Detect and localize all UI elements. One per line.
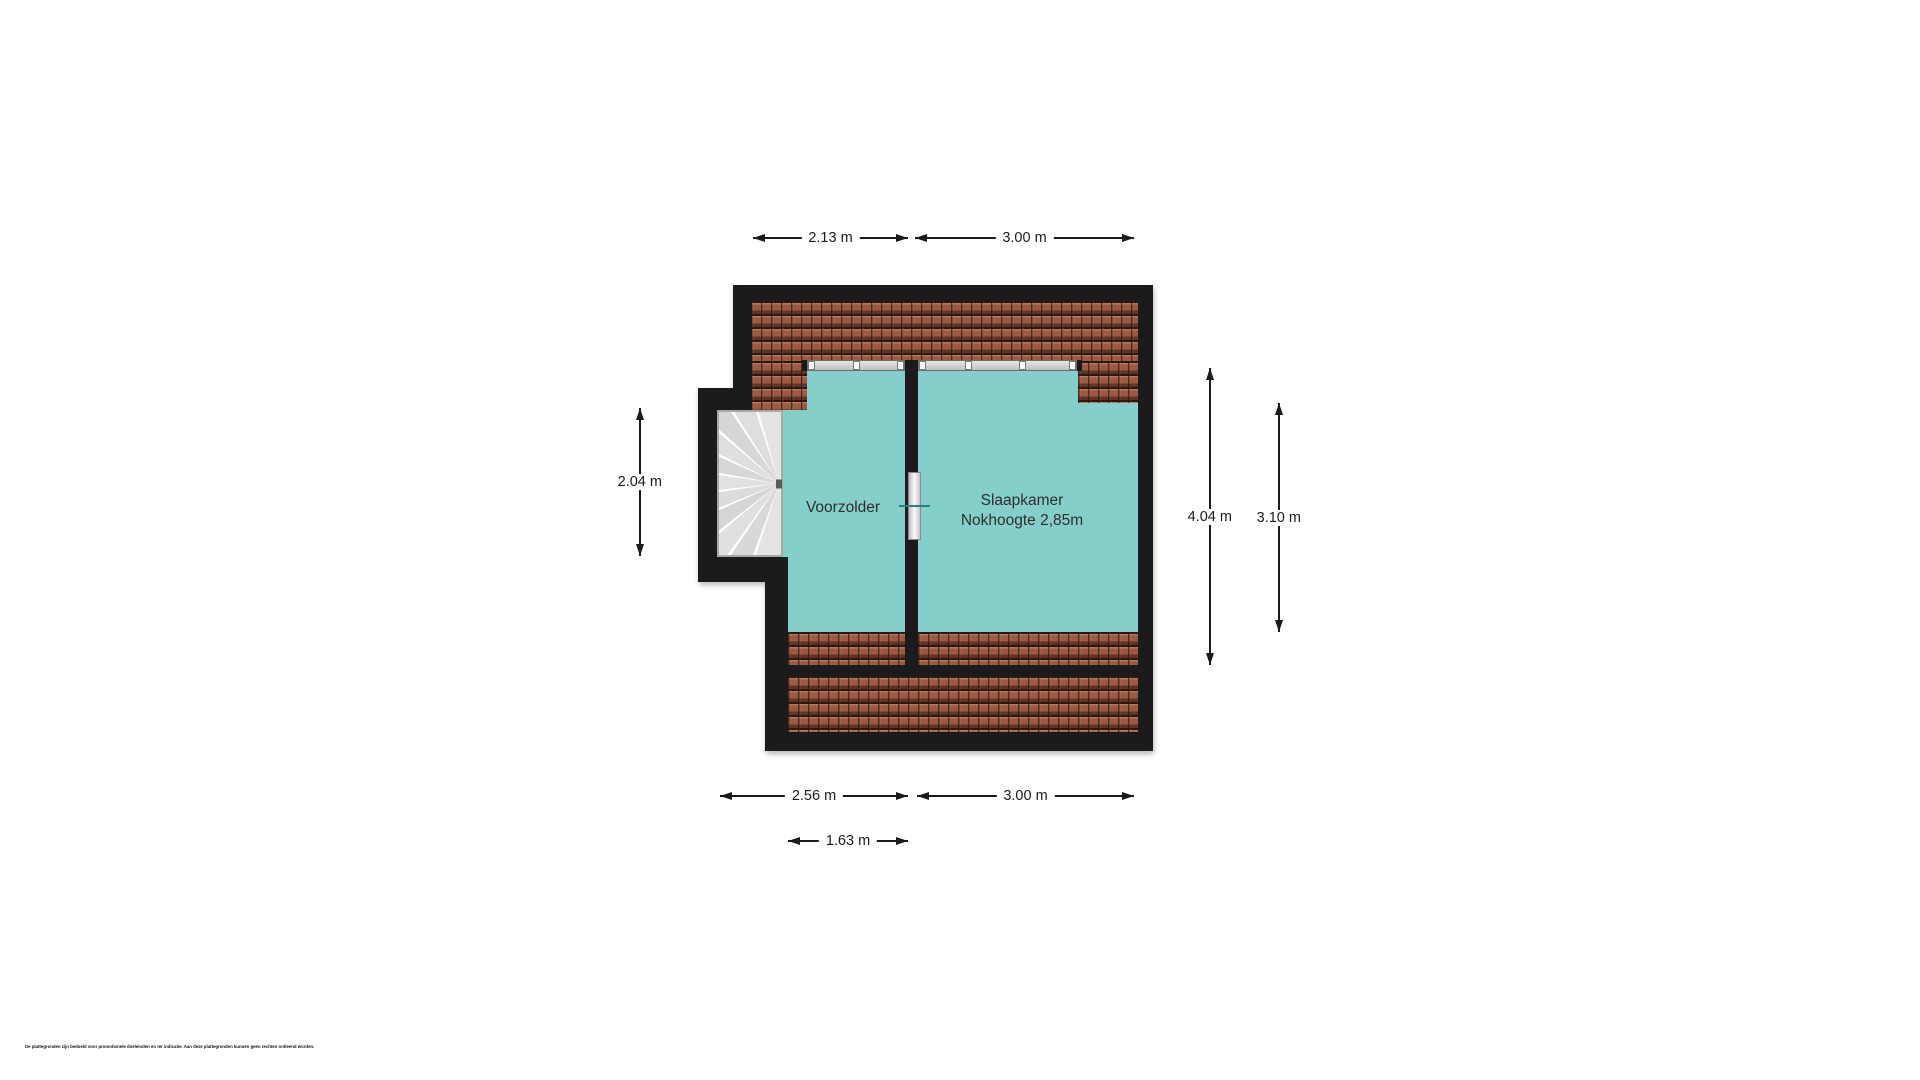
- window-mullion: [1019, 361, 1026, 370]
- dimension-bottom-inner: 1.63 m: [788, 840, 908, 842]
- dimension-label: 2.04 m: [611, 474, 669, 490]
- arrow-right-icon: [896, 234, 908, 242]
- window-mullion: [1069, 361, 1076, 370]
- floorplan-drawing: [0, 0, 1920, 1080]
- roof-left-notch: [751, 361, 807, 410]
- room-note: Nokhoogte 2,85m: [961, 511, 1083, 531]
- dimension-label: 1.63 m: [819, 833, 877, 849]
- wall-top: [733, 285, 1153, 301]
- window-stub-right: [1077, 360, 1082, 371]
- floorplan-canvas: 2.13 m 3.00 m 2.04 m 4.04 m 3.10 m 2.56 …: [0, 0, 1920, 1080]
- dimension-label: 4.04 m: [1181, 509, 1239, 525]
- dimension-label: 3.00 m: [995, 230, 1053, 246]
- roof-bottom-right: [918, 632, 1138, 665]
- dimension-label: 3.10 m: [1250, 510, 1308, 526]
- roof-right-notch: [1078, 361, 1138, 403]
- roof-top-band: [751, 301, 1138, 361]
- dimension-top-right: 3.00 m: [915, 237, 1134, 239]
- window-mullion: [919, 361, 926, 370]
- slaapkamer-label: Slaapkamer Nokhoogte 2,85m: [961, 491, 1083, 531]
- window-mullion: [808, 361, 815, 370]
- window-mullion: [853, 361, 860, 370]
- dimension-left: 2.04 m: [639, 408, 641, 556]
- disclaimer-text: De plattegronden zijn bedoeld voor promo…: [25, 1044, 314, 1049]
- window-right: [918, 360, 1077, 371]
- arrow-left-icon: [917, 792, 929, 800]
- arrow-left-icon: [720, 792, 732, 800]
- wall-bump-left: [698, 388, 717, 578]
- door-threshold-line: [899, 505, 930, 507]
- wall-bump-top: [698, 388, 752, 410]
- room-name: Voorzolder: [806, 499, 880, 516]
- arrow-down-icon: [636, 544, 644, 556]
- arrow-left-icon: [753, 234, 765, 242]
- dimension-label: 2.13 m: [801, 230, 859, 246]
- dimension-right-inner: 3.10 m: [1278, 403, 1280, 632]
- arrow-down-icon: [1275, 620, 1283, 632]
- wall-bottom: [765, 732, 1153, 751]
- arrow-up-icon: [1275, 403, 1283, 415]
- arrow-right-icon: [896, 792, 908, 800]
- wall-right: [1138, 285, 1153, 751]
- staircase-newel: [776, 479, 782, 488]
- dimension-right-outer: 4.04 m: [1209, 368, 1211, 665]
- arrow-down-icon: [1206, 653, 1214, 665]
- roof-bottom-band: [788, 676, 1138, 732]
- window-mullion: [897, 361, 904, 370]
- window-mullion: [965, 361, 972, 370]
- roof-bottom-left: [788, 632, 905, 665]
- dimension-label: 2.56 m: [785, 788, 843, 804]
- arrow-right-icon: [896, 837, 908, 845]
- voorzolder-label: Voorzolder: [806, 498, 880, 518]
- dimension-label: 3.00 m: [996, 788, 1054, 804]
- dimension-bottom-left: 2.56 m: [720, 795, 908, 797]
- arrow-left-icon: [915, 234, 927, 242]
- arrow-right-icon: [1122, 792, 1134, 800]
- window-left: [807, 360, 905, 371]
- arrow-up-icon: [636, 408, 644, 420]
- staircase: [717, 410, 783, 557]
- wall-lower-left: [765, 557, 788, 751]
- dimension-top-left: 2.13 m: [753, 237, 908, 239]
- arrow-right-icon: [1122, 234, 1134, 242]
- arrow-left-icon: [788, 837, 800, 845]
- dimension-bottom-right: 3.00 m: [917, 795, 1134, 797]
- wall-bottom-separator: [788, 665, 1138, 676]
- arrow-up-icon: [1206, 368, 1214, 380]
- room-name: Slaapkamer: [961, 491, 1083, 511]
